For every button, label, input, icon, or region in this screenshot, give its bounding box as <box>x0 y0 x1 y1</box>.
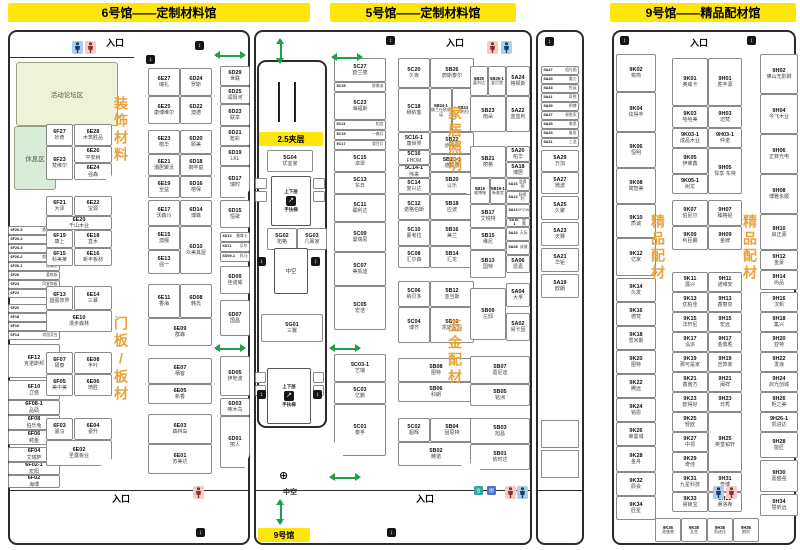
booth-6E21: 6E21潮居聚沃 <box>148 154 180 176</box>
booth-6F21: 6F21大泽 <box>46 196 73 216</box>
booth-6E01: 6E01苏美达 <box>148 444 212 474</box>
booth-9H12: 9H12金豪 <box>760 250 798 270</box>
booth-6F02: 6F02海博 <box>8 475 60 488</box>
booth-5C14-1: 5C14-1伟来 <box>398 165 430 178</box>
booth-9K01: 9K01奥威卡 <box>672 58 708 106</box>
booth-6F26: 6F26爱格板 <box>8 271 60 280</box>
booth-5A31: 5A31三龙 <box>541 138 579 147</box>
category-label: 门板/板材 <box>114 316 128 403</box>
wall-line <box>10 490 248 491</box>
booth-6E25: 6E25康博维尔 <box>148 96 180 124</box>
booth-5A02: 5A02易卡固 <box>506 313 530 341</box>
facility-icon: ↕ <box>386 36 395 45</box>
flow-arrow-icon <box>216 55 244 57</box>
booth-6E19: 6E19全益 <box>148 176 180 198</box>
booth-6D01: 6D01丽人 <box>220 416 250 468</box>
restroom-female-icon <box>85 41 96 54</box>
booth-5A14: 5A14旸得利 <box>506 191 530 204</box>
booth-9H07: 9H07臻格铝 <box>708 200 742 226</box>
booth-5A43: 5A43恒英 <box>541 84 579 93</box>
booth-5B07: 5B07葛尼迪 <box>470 356 530 384</box>
restroom-female-icon <box>505 486 516 499</box>
hall9-tag: 9号馆 <box>258 528 310 542</box>
booth-9K03: 9K03哈哈美 <box>672 106 708 128</box>
booth-9K19: 9K19那可是家 <box>672 352 708 372</box>
booth-9K21: 9K21鑫南方 <box>672 372 708 392</box>
booth-6E05: 6E05新香 <box>148 384 212 404</box>
booth-5A08: 5A08成骏 <box>506 241 530 255</box>
booth-5C09: 5C09曼瑞思 <box>334 222 386 252</box>
service-box <box>541 450 579 478</box>
booth-6E09: 6E09群森 <box>148 318 212 346</box>
mezzanine-label: 2.5夹层 <box>259 132 323 146</box>
booth-9K16: 9K16德梵 <box>616 302 656 326</box>
booth-5A20: 5A20柏华 <box>506 146 530 162</box>
booth-9K33: 9K33易锁宝 <box>672 492 708 512</box>
booth-5A41: 5A41奇胜 <box>541 93 579 102</box>
booth-5G01: 5G01三翼 <box>261 314 323 342</box>
booth-6D19: 6D19LKL <box>220 146 250 166</box>
booth-5A12: 5A12XPOWER <box>506 204 530 218</box>
booth-9K38: 9K38瓦克 <box>681 518 707 542</box>
booth-6F27: 6F27妙奇 <box>46 124 73 146</box>
booth-6D16: 6D16榕保 <box>180 176 212 198</box>
booth-6D21: 6D21乾彩 <box>220 126 250 146</box>
booth-5G03: 5G03几阁家 <box>297 228 327 250</box>
entrance-label: 入口 <box>688 36 710 49</box>
hall5-banner: 5号馆——定制材料馆 <box>330 3 516 22</box>
booth-9H28: 9H28能匠 <box>760 432 798 458</box>
booth-6F23: 6F23梵维尔 <box>46 146 73 180</box>
booth-6E28: 6E28木筑胜品 <box>74 124 112 146</box>
booth-6E13: 6E13强一 <box>148 250 180 274</box>
escalator-icon: ↗ <box>286 196 296 206</box>
facility-icon: ↕ <box>257 390 266 399</box>
booth-9H18: 9H18集兴 <box>760 312 798 332</box>
booth-6E24: 6E24强森 <box>74 163 112 180</box>
booth-5C23: 5C23海福斯 <box>334 92 386 120</box>
booth-6D25: 6D25润阳河 <box>220 86 250 104</box>
booth-6E14: 6E14三慕 <box>74 286 112 310</box>
booth-9H34: 9H34慧昕远 <box>760 494 798 516</box>
booth-9H26-1: 9H26-1凯进达 <box>760 412 798 432</box>
booth-9K17: 9K17泓派 <box>672 332 708 352</box>
booth-5C18: 5C18栖依客 <box>398 88 430 132</box>
booth-9H13: 9H13鑫丽泉 <box>708 292 742 312</box>
booth-6E16: 6E16新丰板材 <box>74 248 112 266</box>
booth-5C27: 5C27欧兰德 <box>334 58 386 82</box>
booth-6F19: 6F19康上 <box>46 230 73 248</box>
booth-6D22: 6D22澳德 <box>180 96 212 124</box>
booth-6F03: 6F03骏马 <box>46 418 73 440</box>
booth-9H10: 9H10启正源 <box>760 214 798 250</box>
facility-icon: ↕ <box>146 55 155 64</box>
floor-map: 6号馆——定制材料馆 5号馆——定制材料馆 9号馆——精品配材馆 活动论坛区 休… <box>0 0 800 550</box>
service-icon: 图 <box>487 486 496 495</box>
booth-5A10: 5A10天际 <box>506 227 530 241</box>
booth-9H36: 9H36朗尚 <box>733 518 759 542</box>
booth-5C03-1: 5C03-1艺瑞 <box>334 354 386 382</box>
booth-5B04: 5B04固思特 <box>430 418 474 442</box>
booth-5C16: 5C16FHOM <box>398 150 430 165</box>
flow-arrow-icon <box>331 477 359 479</box>
booth-9K27: 9K27中领 <box>672 432 708 452</box>
escalator-icon: ↗ <box>284 391 294 401</box>
booth-5C01: 5C01泰孚 <box>334 404 386 456</box>
restroom-female-icon <box>193 486 204 499</box>
booth-9K05: 9K05伊莱鑫 <box>672 148 708 174</box>
booth-5B20: 5B20以乐 <box>430 172 474 194</box>
flow-arrow-icon <box>280 40 282 62</box>
booth-6F15: 6F15科美莱 <box>46 248 73 266</box>
booth-5C14: 5C14复兴达 <box>398 178 430 194</box>
booth-9H38: 9H38凯迪佳 <box>707 518 733 542</box>
booth-5C02: 5C02超辉 <box>398 418 430 442</box>
escalator: 上下层↗手扶梯 <box>271 176 311 226</box>
booth-5C11: 5C11联利达 <box>334 194 386 222</box>
booth-6D05: 6D05伊地波 <box>220 356 250 396</box>
booth-6E17: 6E17沃森川 <box>148 200 180 226</box>
restroom-male-icon <box>517 486 528 499</box>
booth-6D08: 6D08韩氏 <box>180 284 212 318</box>
booth-5B18: 5B18应波 <box>430 194 474 220</box>
flow-arrow-icon <box>333 57 361 59</box>
atrium-target-icon: ⊕ <box>279 471 288 482</box>
booth-6E20: 6E20千山木业 <box>46 216 112 230</box>
booth-5B25: 5B25嘉利达 <box>470 66 488 96</box>
booth-9K23: 9K23欧得好 <box>672 392 708 412</box>
booth-9K08: 9K08简智美 <box>616 168 656 204</box>
booth-5A27: 5A27微波 <box>541 172 579 194</box>
booth-9H14: 9H14尚品 <box>760 270 798 290</box>
hall6-banner: 6号馆——定制材料馆 <box>8 3 310 22</box>
booth-6D14: 6D14博森 <box>180 200 212 226</box>
entrance-label: 入口 <box>110 492 132 505</box>
booth-5B19: 5B19威博施 <box>470 178 490 204</box>
booth-9H09: 9H09金牌 <box>708 226 742 250</box>
booth-6D29: 6D29世联 <box>220 66 250 86</box>
booth-6D17: 6D17瑞时 <box>220 166 250 198</box>
restroom-female-icon <box>726 486 737 499</box>
booth-6D20: 6D20颐美 <box>180 130 212 154</box>
booth-9K29: 9K29奇佳 <box>672 452 708 472</box>
service-box <box>541 420 579 448</box>
facility-icon: ↕ <box>311 257 320 266</box>
service-box <box>255 372 266 383</box>
booth-5A22: 5A22蓝玺利 <box>506 96 530 132</box>
booth-6D18: 6D18御丰庭 <box>180 154 212 176</box>
facility-icon: ↕ <box>620 36 629 45</box>
booth-6D23: 6D23联享 <box>220 104 250 126</box>
atrium-label: 中空 <box>266 487 314 497</box>
booth-9K15: 9K15法轩尼 <box>672 312 708 332</box>
booth-6D09: 6D09佳诺威 <box>220 266 250 294</box>
facility-icon: ↕ <box>195 41 204 50</box>
booth-5C15: 5C15卓翠 <box>334 150 386 172</box>
booth-9K32: 9K32辰会 <box>616 472 656 496</box>
facility-icon: ↕ <box>545 37 554 46</box>
booth-5A18: 5A18博居 <box>506 162 530 178</box>
booth-9K13: 9K13优柏佳 <box>672 292 708 312</box>
booth-9H15: 9H15宏远 <box>708 312 742 332</box>
booth-5B14: 5B14汇龙 <box>430 246 474 268</box>
booth-5A35: 5A35美思 <box>541 120 579 129</box>
booth-9K18: 9K18雪米斯 <box>616 326 656 350</box>
booth-9H06: 9H06正菲光电 <box>760 134 798 174</box>
booth-5B23: 5B23南朵 <box>470 96 506 132</box>
booth-9K36: 9K36洛施普 <box>655 518 681 542</box>
booth-5C21: 5C21相宜 <box>334 120 386 130</box>
booth-6D09-1: 6D09-1科马 <box>220 252 250 262</box>
booth-6E11: 6E11香海 <box>148 284 180 318</box>
facility-icon: ↕ <box>313 390 322 399</box>
hall9-banner: 9号馆——精品配材馆 <box>610 3 796 22</box>
entrance-label: 入口 <box>414 492 436 505</box>
flow-arrow-icon <box>331 348 359 350</box>
escalator: 上下层↗手扶梯 <box>267 368 311 424</box>
booth-9K34: 9K34匠星 <box>616 496 656 520</box>
booth-6E18: 6E18直木 <box>74 230 112 248</box>
booth-9H03: 9H03迈梵 <box>708 106 742 128</box>
booth-5G04: 5G04优宜家 <box>267 150 313 172</box>
booth-6E15: 6E15澳檀 <box>148 226 180 250</box>
service-box <box>313 372 324 383</box>
booth-9H08: 9H08博雅永顺 <box>760 174 798 214</box>
booth-5C10: 5C10蒙考拉 <box>398 220 430 246</box>
service-box <box>255 191 267 202</box>
booth-9H01: 9H01胜丰源 <box>708 58 742 106</box>
booth-5B19-1: 5B19-1新美堂 <box>490 178 506 204</box>
booth-6F08-1: 6F08-1品硕 <box>8 400 60 415</box>
booth-6F13: 6F13圆弧饰界 <box>46 286 73 310</box>
booth-5G02: 5G02拓格 <box>267 228 297 250</box>
facility-icon: ↕ <box>387 528 396 537</box>
booth-5B13: 5B13国特 <box>470 250 506 278</box>
booth-5A23: 5A23天狮 <box>541 222 579 246</box>
booth-9K24: 9K24铭恩 <box>616 398 656 422</box>
booth-5C12: 5C12诺格伯斯 <box>398 194 430 220</box>
atrium-box: 中空 <box>274 248 308 294</box>
booth-5B17: 5B17艾锐特 <box>470 204 506 228</box>
booth-9K20: 9K20图特 <box>616 350 656 374</box>
booth-9H11: 9H11诺维安 <box>708 272 742 292</box>
booth-6F05: 6F05美中美 <box>46 374 73 396</box>
booth-6E10: 6E10漫步森林 <box>46 310 112 332</box>
booth-5C20: 5C20久夜 <box>398 58 430 88</box>
booth-5A19: 5A19欧朗 <box>541 274 579 298</box>
facility-icon: ↕ <box>196 528 205 537</box>
stair-bar <box>294 82 296 122</box>
category-label: 五金配材 <box>448 318 462 386</box>
booth-5A04: 5A04大孚 <box>506 283 530 307</box>
booth-6E08: 6E08丰叶 <box>74 352 112 374</box>
booth-6D07: 6D07国昌 <box>220 300 250 336</box>
category-label: 家居照明 <box>448 106 462 174</box>
booth-6D15: 6D15恒歌 <box>220 200 250 228</box>
booth-6D13: 6D13雅尊士 <box>220 232 250 242</box>
booth-9K26: 9K26莱曼城 <box>616 422 656 446</box>
booth-5C16-1: 5C16-1康世界 <box>398 132 430 150</box>
booth-5B25-1: 5B25-1爱灯堡 <box>488 66 506 96</box>
booth-5A29: 5A29万加 <box>541 150 579 172</box>
category-label: 精品配材 <box>651 214 665 282</box>
booth-5C13: 5C13东日 <box>334 172 386 194</box>
wall-line <box>538 490 582 491</box>
booth-5A47: 5A47相光图 <box>541 66 579 75</box>
booth-6F14: 6F14尚居武台 <box>8 331 60 340</box>
entrance-label: 入口 <box>444 36 466 49</box>
booth-9K06: 9K06恒明 <box>616 132 656 168</box>
booth-5A39: 5A39明博 <box>541 102 579 111</box>
restroom-male-icon <box>501 41 512 54</box>
booth-5C25: 5C25欧美派 <box>334 82 386 92</box>
booth-5A10-1: 5A10-1曲美 <box>506 218 530 227</box>
booth-9K09: 9K09利臣朗 <box>672 226 708 250</box>
booth-9K25: 9K25轻欧 <box>672 412 708 432</box>
service-box <box>313 178 325 189</box>
restroom-male-icon <box>713 486 724 499</box>
booth-5B09: 5B09左邸 <box>470 288 506 340</box>
booth-6E03: 6E03森林岛 <box>148 414 212 444</box>
booth-9H26: 9H26柜之美 <box>760 392 798 412</box>
booth-5B05: 5B05铭洲 <box>470 384 530 406</box>
booth-5A24: 5A24格顿斯 <box>506 66 530 96</box>
booth-5B01: 5B01依时达 <box>470 444 530 470</box>
booth-9K11: 9K11展兴 <box>672 272 708 292</box>
booth-9H25: 9H25英皇铂轩 <box>708 412 742 472</box>
service-box <box>313 191 325 202</box>
booth-5C04: 5C04博齐 <box>398 307 430 343</box>
booth-5C08: 5C08汇尔森 <box>398 246 430 268</box>
booth-5B03: 5B03旭昌 <box>470 418 530 444</box>
booth-9K07: 9K07伯尼尔 <box>672 200 708 226</box>
booth-9K22: 9K22腾远 <box>616 374 656 398</box>
booth-5A33: 5A33鲁班 <box>541 129 579 138</box>
booth-9H04: 9H04今飞木业 <box>760 94 798 134</box>
booth-5B26: 5B26蔚斯泰尔 <box>430 58 474 88</box>
booth-5B16: 5B16美兰 <box>430 220 474 246</box>
booth-5A16: 5A16圣得园 <box>506 178 530 191</box>
restroom-female-icon <box>487 41 498 54</box>
category-label: 精品配材 <box>743 214 757 282</box>
booth-5C17: 5C17奥百灯 <box>334 140 386 150</box>
booth-9H03-1: 9H03-1仲诺 <box>708 128 742 148</box>
wall-line <box>10 57 134 58</box>
entrance-label: 入口 <box>104 36 126 49</box>
stair-bar <box>278 82 280 122</box>
booth-9H17: 9H17金鼎胜 <box>708 332 742 352</box>
booth-9H23: 9H23日秀 <box>708 392 742 412</box>
booth-6E06: 6E06琦胜 <box>74 374 112 396</box>
booth-9K04: 9K04炫得丰 <box>616 92 656 132</box>
booth-9H16: 9H16汉帆 <box>760 292 798 312</box>
booth-5B02: 5B02精诺 <box>398 442 474 466</box>
booth-5A45: 5A45魔力 <box>541 75 579 84</box>
booth-5C05: 5C05宏浩 <box>334 286 386 330</box>
category-label: 装饰材料 <box>114 96 128 164</box>
booth-9H05: 9H05悍享·东特 <box>708 148 742 194</box>
booth-6E02: 6E02圣露板业 <box>46 440 112 466</box>
booth-9K31: 9K31九星科技 <box>672 472 708 492</box>
facility-icon: ↕ <box>257 257 266 266</box>
booth-9H02: 9H02佛山无影脚 <box>760 54 798 94</box>
booth-5B12: 5B12亚当斯 <box>430 281 474 307</box>
booth-9K05-1: 9K05-1树龙 <box>672 174 708 194</box>
booth-6F07: 6F07硕泰 <box>46 352 73 374</box>
booth-5A37: 5A37易胜家 <box>541 111 579 120</box>
booth-5A25: 5A25久聚 <box>541 196 579 220</box>
booth-6E26: 6E26平安树 <box>74 146 112 163</box>
service-box <box>255 178 267 189</box>
booth-9H20: 9H20亚特 <box>760 332 798 352</box>
booth-5C19: 5C19一森灯 <box>334 130 386 140</box>
booth-6E27: 6E27瑞礼 <box>148 68 180 96</box>
booth-6E04: 6E04豪升 <box>74 418 112 440</box>
booth-6E22: 6E22宝源 <box>74 196 112 216</box>
booth-5C07: 5C07美凯迪 <box>334 252 386 286</box>
flow-arrow-icon <box>216 348 244 350</box>
booth-9K02: 9K02奕简 <box>616 54 656 92</box>
booth-9K28: 9K28金舟 <box>616 446 656 472</box>
booth-9K03-1: 9K03-1成品木业 <box>672 128 708 148</box>
flow-arrow-icon <box>280 501 282 523</box>
restroom-male-icon <box>72 41 83 54</box>
booth-6D10: 6D10众美其屋 <box>180 226 212 274</box>
service-icon: 合 <box>474 486 483 495</box>
booth-6D03: 6D03啄木鸟 <box>220 398 250 416</box>
booth-6E23: 6E23榕华 <box>148 130 180 154</box>
booth-9H19: 9H19吉饰家 <box>708 352 742 372</box>
booth-6D24: 6D24罗斯 <box>180 68 212 96</box>
booth-5A06: 5A06恩嘉 <box>506 255 530 273</box>
booth-6D11: 6D11贝尔 <box>220 242 250 252</box>
booth-9H22: 9H22发浪 <box>760 352 798 372</box>
booth-6E07: 6E07栖客 <box>148 358 212 384</box>
booth-9H21: 9H21闽祥 <box>708 372 742 392</box>
booth-5B15: 5B15维尼 <box>470 228 506 250</box>
booth-9H30: 9H30嘉盛强 <box>760 460 798 492</box>
booth-5A21: 5A21华钜 <box>541 248 579 272</box>
booth-5C03: 5C03亿鹏 <box>334 382 386 404</box>
booth-9H24: 9H24启光创城 <box>760 372 798 392</box>
booth-5B21: 5B21丽格 <box>470 146 506 178</box>
facility-icon: ↕ <box>747 36 756 45</box>
booth-5C06: 5C06纳贝多 <box>398 281 430 307</box>
